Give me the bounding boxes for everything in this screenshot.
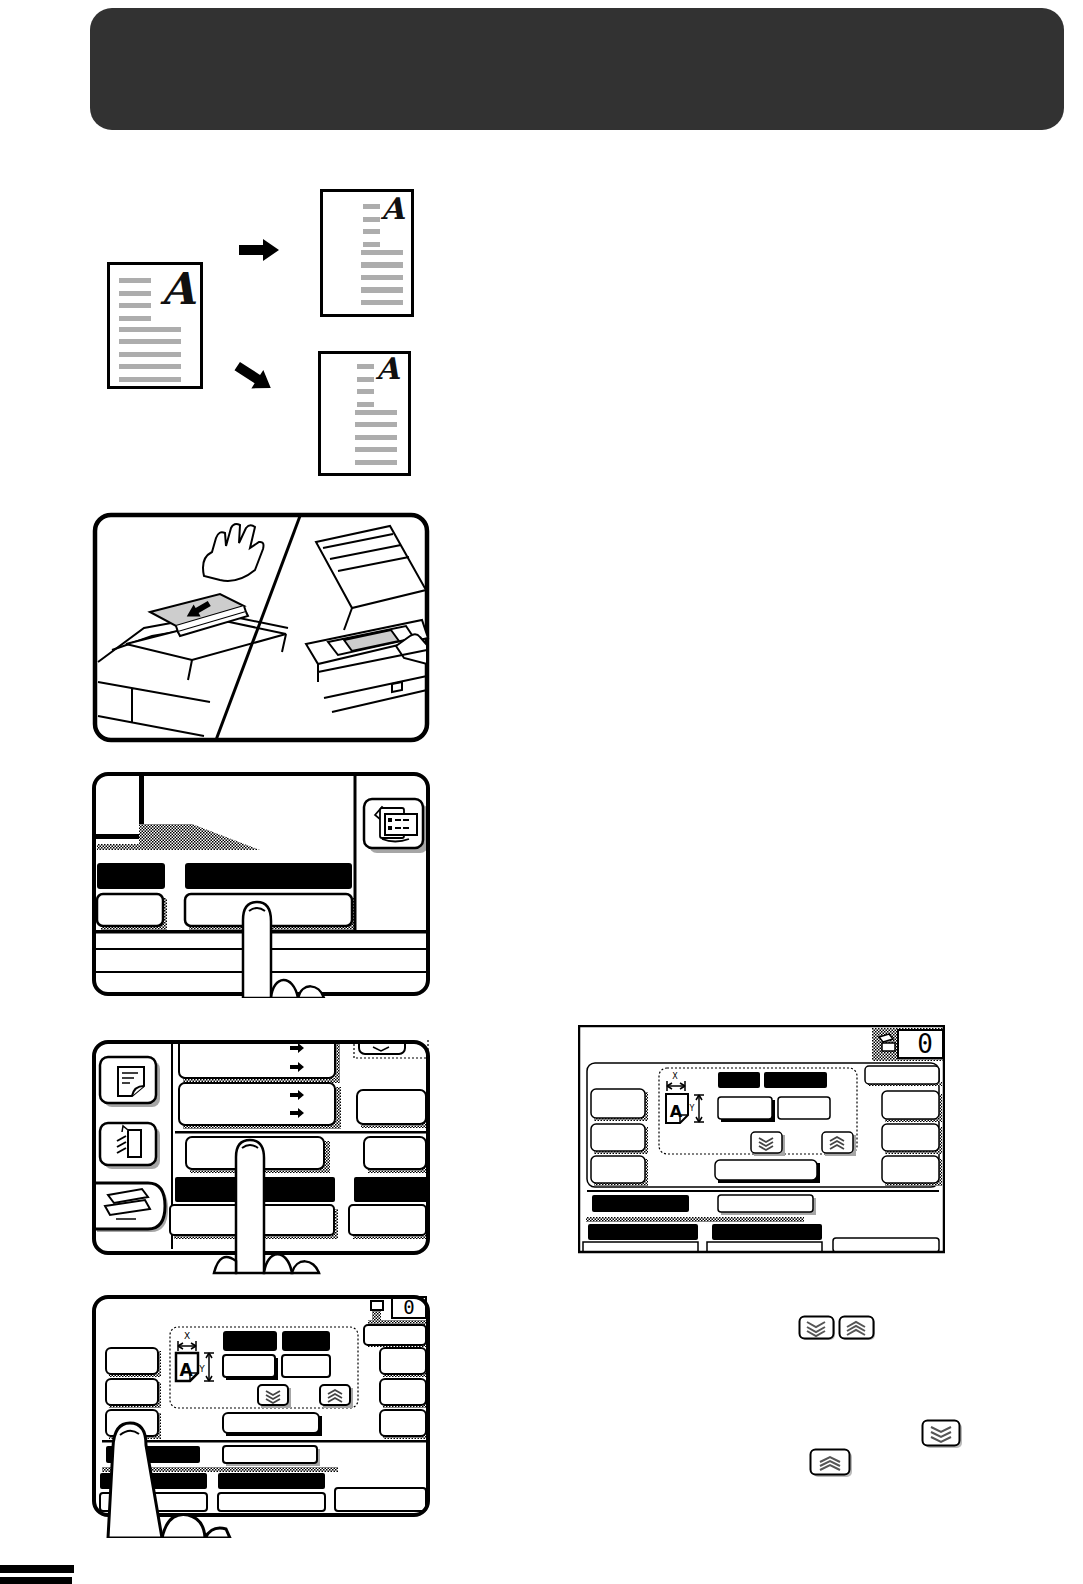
left-key-2 [106,1379,161,1408]
paper-size-a-icon: A [176,1353,198,1381]
scroll-up-key [822,1132,856,1156]
left-key-1 [106,1348,161,1377]
sidebar-key-feeder [100,1123,160,1169]
document-text-lines [355,410,397,468]
paper-size-a-icon: A [666,1094,688,1123]
scroll-down-key [751,1132,785,1156]
redacted-tab-label [588,1224,698,1240]
tab-key [707,1242,822,1252]
wide-key [715,1160,820,1183]
screen-divider [102,1440,426,1443]
page-edge-marker [0,1577,72,1584]
sidebar-key-original [100,1057,160,1107]
touchscreen-size-entry: 0 X A Y [578,1025,945,1254]
original-document: A [107,262,203,389]
sidebar-tab-platen [94,1183,168,1232]
arrow-right-icon [237,238,281,262]
tab-shadow-strip [586,1217,804,1222]
x-value-field [718,1097,775,1122]
right-key-3 [380,1410,429,1439]
redacted-key-label [282,1331,330,1351]
top-right-key [865,1066,942,1086]
redacted-key-label [223,1331,277,1351]
redacted-key-label [97,863,165,889]
original-letter: A [161,267,195,311]
copy-counter-value: 0 [917,1029,933,1059]
section-header-banner [90,8,1064,130]
paper-letter: A [179,1360,193,1380]
inline-scroll-down-key [921,1419,963,1449]
left-key-3 [591,1156,648,1186]
inline-scroll-down-key [798,1315,836,1341]
left-key-1 [591,1089,648,1121]
mode-key-second [179,1083,341,1129]
right-key-low [364,1137,430,1173]
x-label: X [184,1331,190,1341]
y-label: Y [198,1364,205,1374]
right-key-3 [882,1156,942,1186]
screen-divider [175,1131,426,1134]
panel-screenshot-duplex-select [92,1040,430,1275]
y-label: Y [689,1104,695,1113]
tab-key [218,1493,325,1511]
panel-screenshot-size-entry-crop: 0 X A Y [92,1295,430,1538]
paper-letter: A [670,1102,683,1121]
mode-key-top [179,1040,340,1083]
document-text-lines [119,327,181,385]
inline-scroll-up-key [838,1315,876,1341]
mid-key [223,1446,320,1466]
left-key-2 [591,1124,648,1154]
redacted-key-label [764,1072,827,1088]
y-value-field [778,1097,830,1119]
right-key-2 [380,1379,429,1408]
x-label: X [672,1072,678,1081]
copy2-letter: A [376,354,399,384]
right-key-2 [882,1124,942,1154]
arrow-diagonal-icon [229,355,279,399]
scroll-down-key [258,1385,291,1408]
x-value-field [223,1355,278,1380]
mid-key [718,1195,816,1215]
document-text-lines [361,250,403,308]
tab-key [583,1242,698,1252]
redacted-key-label [354,1177,428,1202]
special-modes-key [364,799,428,853]
redacted-key-label [185,863,352,889]
wide-key [223,1413,322,1436]
y-value-field [282,1355,330,1377]
screen-divider [587,1190,939,1192]
copy-document-2: A [318,351,411,476]
screen-key-left [97,894,167,930]
redacted-key-label [592,1195,689,1212]
document-text-lines [357,364,374,407]
copier-illustration [92,512,430,743]
panel-screenshot-special-modes [92,772,430,998]
copy-counter: 0 [898,1029,943,1059]
right-key-1 [882,1091,942,1122]
redacted-tab-label [218,1473,325,1489]
right-key-mid [357,1090,430,1128]
page-edge-marker [0,1565,74,1573]
tab-key [833,1238,939,1252]
copy1-letter: A [381,194,404,224]
copy-document-1: A [320,189,414,317]
document-text-lines [363,204,380,247]
scroll-up-key [320,1385,353,1408]
right-key-1 [380,1348,429,1377]
inline-scroll-up-key [809,1448,853,1478]
redacted-tab-label [712,1224,822,1240]
copy-counter-value: 0 [403,1296,414,1318]
bottom-key-right [349,1205,429,1239]
tab-key [335,1488,426,1511]
document-text-lines [119,278,151,323]
redacted-key-label [718,1072,760,1088]
top-right-key [364,1325,429,1347]
